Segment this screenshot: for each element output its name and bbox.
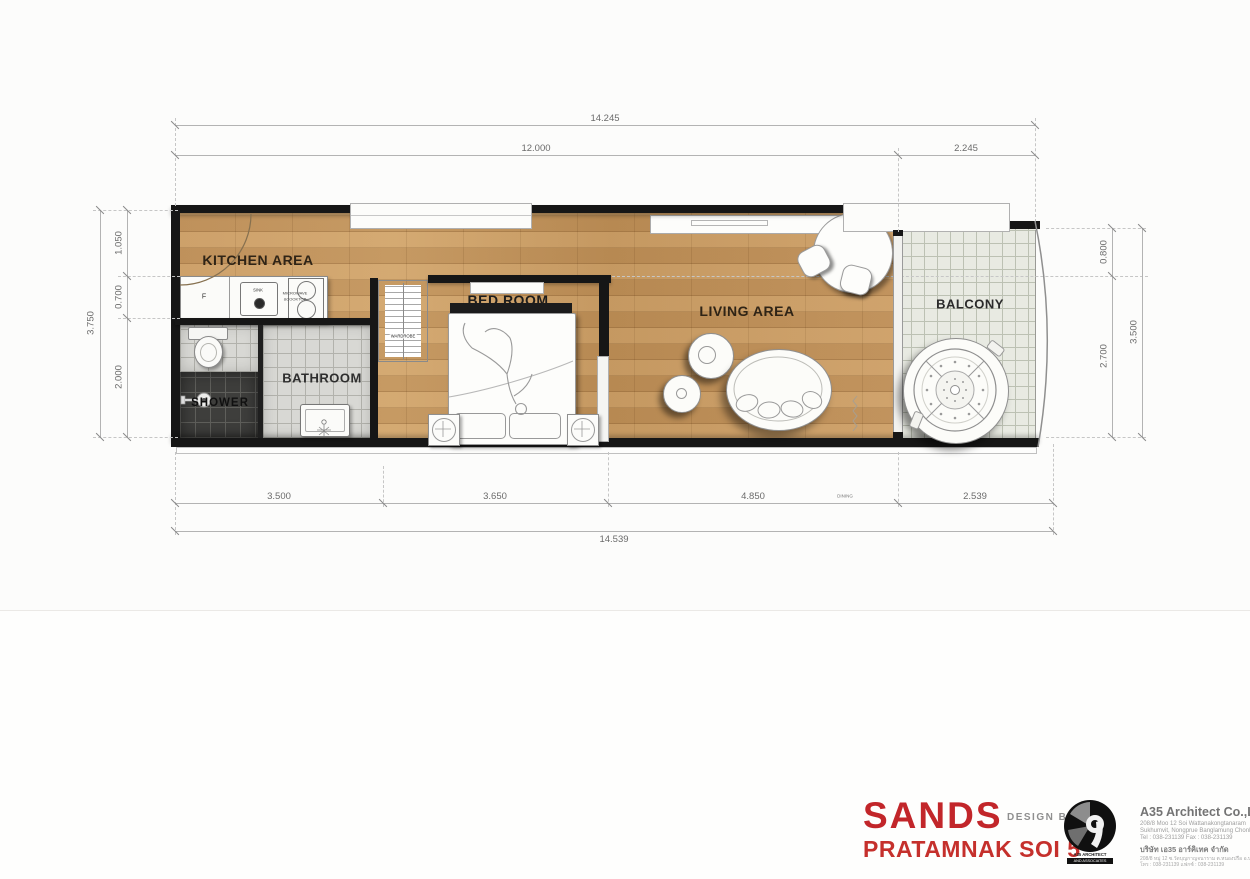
sink-drain: [254, 298, 265, 309]
dim-top-total: 14.245: [590, 113, 619, 124]
fridge-divider: [229, 277, 230, 321]
dim-left-seg-3: 2.000: [114, 365, 125, 389]
dim-line-left-segments: [127, 210, 128, 437]
extension-line: [383, 466, 384, 507]
extension-line: [898, 148, 899, 232]
extension-line: [175, 452, 176, 535]
window-mullion: [351, 215, 531, 216]
glass-divider: [893, 230, 903, 438]
dim-left-seg-1: 1.050: [114, 231, 125, 255]
window-sill-bottom: [176, 447, 1037, 454]
label-wardrobe: WARDROBE: [390, 334, 417, 339]
company-name: A35 Architect Co.,Ltd: [1140, 805, 1250, 819]
logo-caption-1: A35 ARCHITECT: [1062, 852, 1118, 857]
dim-line-left-total: [100, 210, 101, 437]
dim-line-bottom-segments: [175, 503, 1053, 504]
jacuzzi: [903, 338, 1009, 444]
company-thai-phone: โทร : 038-231139 แฟกซ์ : 038-231139: [1140, 862, 1250, 868]
balcony-door-header: [843, 203, 1010, 232]
dim-right-total: 3.500: [1129, 320, 1140, 344]
extension-line: [608, 452, 609, 507]
balcony-inner-edge: [1035, 230, 1036, 438]
wardrobe-rod: [403, 283, 404, 359]
logo-caption-2: AND ASSOCIATES: [1067, 858, 1113, 864]
stool-left-circle: [432, 418, 456, 442]
dim-line-top-total: [175, 125, 1035, 126]
project-location: PRATAMNAK SOI 5: [863, 838, 1081, 861]
drawing-sheet: KITCHEN AREA BED ROOM LIVING AREA BATHRO…: [0, 0, 1250, 879]
label-dining-note: DINING: [837, 494, 853, 499]
pouf-large-ring: [698, 346, 716, 364]
vanity-basin: [305, 409, 345, 432]
label-sink: SINK: [253, 288, 263, 293]
room-label-balcony: BALCONY: [936, 297, 1004, 312]
company-phone: Tel : 038-231139 Fax : 038-231139: [1140, 835, 1250, 842]
project-title: SANDS: [863, 797, 1003, 834]
dim-top-seg-1: 12.000: [521, 143, 550, 154]
extension-line: [1035, 118, 1036, 222]
wall-bedroom-right-upper: [599, 275, 609, 358]
room-label-shower: SHOWER: [191, 397, 249, 409]
tv-shelf-line: [691, 220, 768, 226]
toilet-bowl-inner: [200, 343, 217, 362]
a35-logo: [1064, 800, 1116, 852]
dim-line-right-segments: [1112, 228, 1113, 437]
label-fridge: F: [202, 294, 206, 301]
window-top-left: [350, 203, 532, 229]
pouf-small-dot: [676, 388, 687, 399]
wall-bathroom-right: [370, 278, 378, 446]
dim-line-bottom-total: [175, 531, 1053, 532]
stool-right-circle: [571, 418, 595, 442]
company-address-2: Sukhumvit, Nongprue Banglamung Chonburi …: [1140, 828, 1250, 835]
bed-foot-cushion-left: [454, 413, 506, 439]
dim-top-seg-2: 2.245: [954, 143, 978, 154]
extension-line: [1053, 444, 1054, 535]
tv-shelf: [650, 215, 842, 234]
dim-line-top-segments: [175, 155, 1035, 156]
extension-line: [175, 118, 176, 206]
dim-bottom-seg-2: 3.650: [483, 491, 507, 502]
pouf-large: [688, 333, 734, 379]
wall-kitchen-bath-divider: [175, 318, 376, 325]
burner-bottom: [297, 300, 316, 319]
dim-line-right-total: [1142, 228, 1143, 437]
nightstand-left: [428, 414, 460, 446]
dim-bottom-seg-3: 4.850: [741, 491, 765, 502]
label-cooktop-line1: MICROWAVE: [283, 291, 308, 296]
dim-bottom-seg-4: 2.539: [963, 491, 987, 502]
wardrobe-cabinet: [378, 280, 428, 362]
wall-shower-divider: [258, 325, 263, 438]
bed-foot-cushion-right: [509, 413, 561, 439]
round-sofa: [726, 349, 832, 431]
label-cooktop-line2: &COOKTOP: [284, 297, 307, 302]
extension-line: [898, 452, 899, 507]
company-address-1: 208/8 Moo 12 Soi Wattanakongtanaram: [1140, 821, 1250, 828]
room-label-bathroom: BATHROOM: [282, 371, 362, 386]
room-label-bedroom: BED ROOM: [468, 292, 549, 308]
extension-line: [1046, 437, 1146, 438]
company-thai-name: บริษัท เอ35 อาร์คิเทค จำกัด: [1140, 844, 1250, 856]
vanity-sink: [300, 404, 350, 437]
glass-divider-stub-bottom: [893, 432, 903, 438]
pouf-small: [663, 375, 701, 413]
dim-left-total: 3.750: [86, 311, 97, 335]
room-label-living: LIVING AREA: [699, 303, 794, 319]
dim-right-seg-2: 2.700: [1099, 344, 1110, 368]
nightstand-right: [567, 414, 599, 446]
extension-line: [1046, 228, 1146, 229]
extension-line: [93, 437, 178, 438]
room-label-kitchen: KITCHEN AREA: [202, 252, 313, 268]
wall-left: [171, 205, 180, 447]
toilet-bowl: [194, 336, 223, 368]
dim-bottom-seg-1: 3.500: [267, 491, 291, 502]
company-info: A35 Architect Co.,Ltd 208/8 Moo 12 Soi W…: [1140, 805, 1250, 868]
dim-left-seg-2: 0.700: [114, 285, 125, 309]
dim-bottom-total: 14.539: [599, 534, 628, 545]
dim-right-seg-1: 0.800: [1099, 240, 1110, 264]
extension-line: [93, 210, 178, 211]
